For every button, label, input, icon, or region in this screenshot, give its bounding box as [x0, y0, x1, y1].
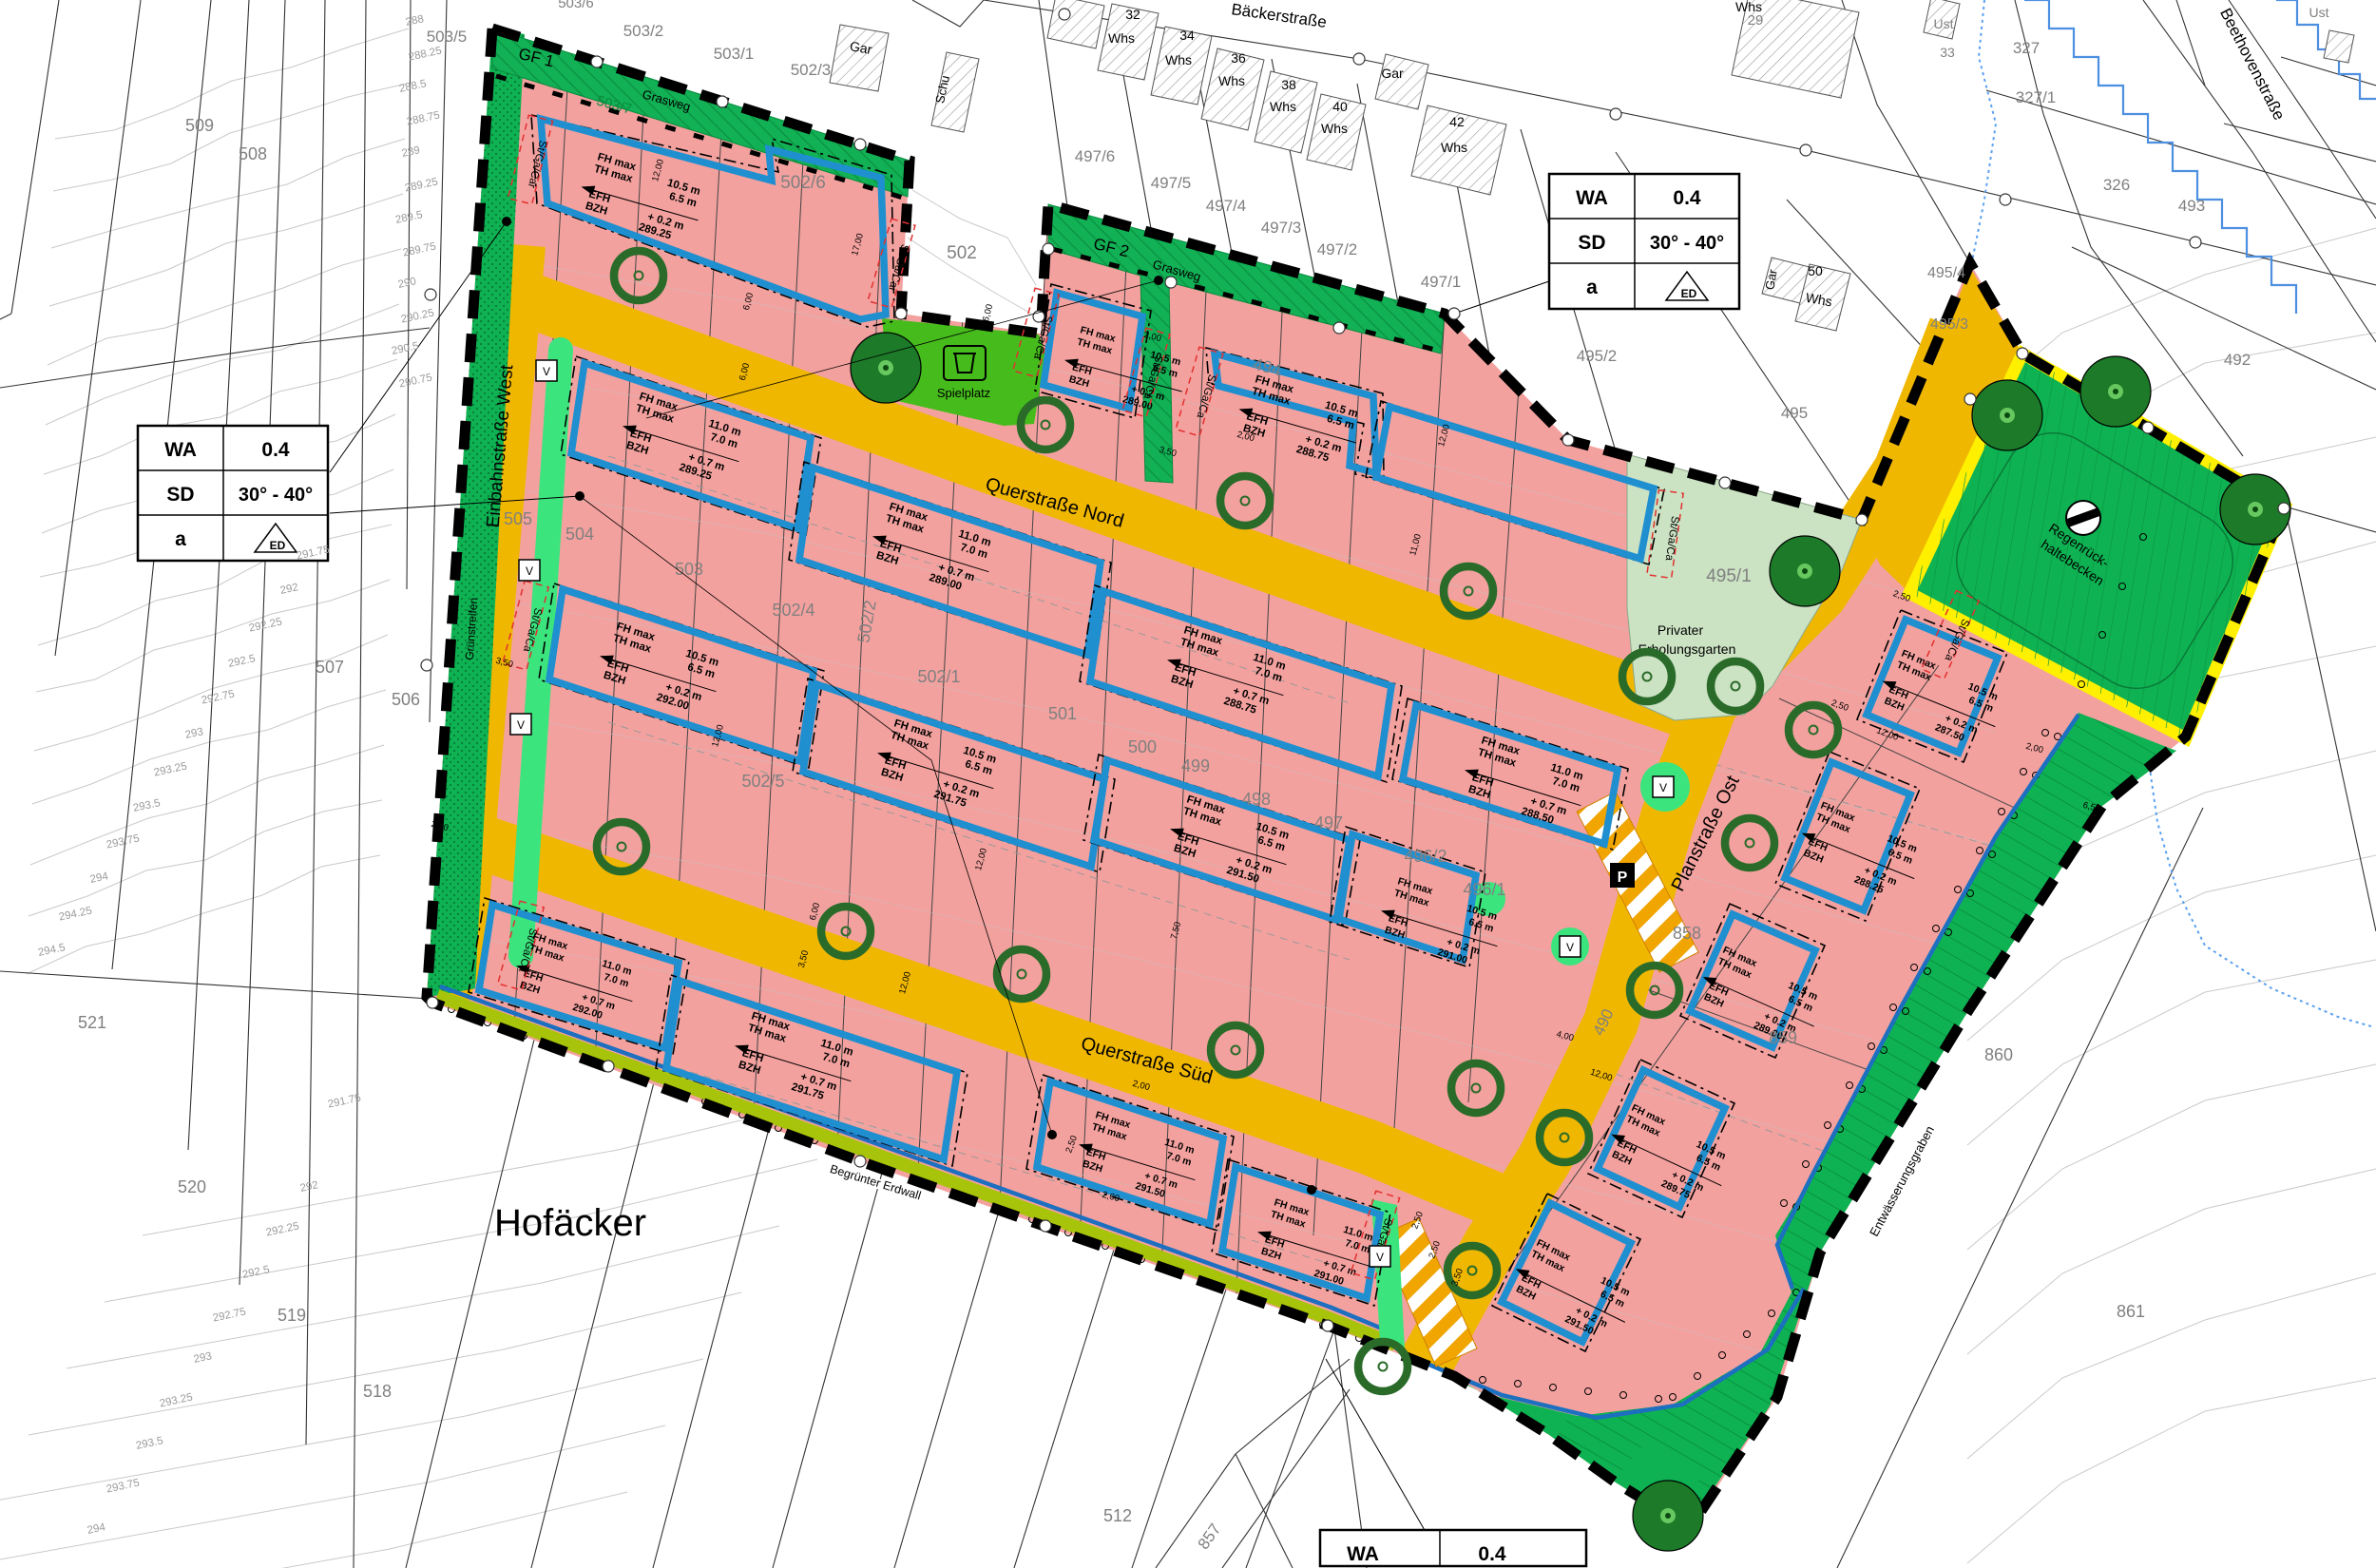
svg-text:503/5: 503/5 — [427, 28, 468, 46]
svg-text:495/3: 495/3 — [1930, 316, 1968, 333]
svg-text:497/6: 497/6 — [1075, 147, 1116, 165]
svg-text:0.4: 0.4 — [1673, 187, 1701, 209]
svg-text:497/5: 497/5 — [1151, 174, 1192, 192]
svg-text:519: 519 — [278, 1306, 306, 1325]
svg-text:Privater: Privater — [1657, 622, 1704, 638]
svg-text:502/6: 502/6 — [780, 173, 826, 193]
svg-text:Whs: Whs — [1321, 121, 1348, 136]
svg-text:502/4: 502/4 — [772, 601, 814, 620]
svg-text:507: 507 — [316, 658, 344, 677]
svg-text:521: 521 — [78, 1013, 106, 1032]
svg-text:501: 501 — [1048, 704, 1077, 723]
svg-text:497/4: 497/4 — [1206, 197, 1247, 215]
svg-text:V: V — [1376, 1251, 1384, 1264]
svg-text:496/2: 496/2 — [1404, 847, 1447, 866]
svg-text:30° - 40°: 30° - 40° — [239, 485, 313, 506]
svg-text:495/1: 495/1 — [1706, 566, 1752, 586]
svg-text:32: 32 — [1125, 7, 1140, 22]
svg-text:502/1: 502/1 — [917, 667, 960, 686]
svg-text:V: V — [1659, 781, 1667, 794]
svg-text:497/3: 497/3 — [1261, 219, 1302, 237]
svg-text:502/3: 502/3 — [791, 61, 832, 79]
svg-text:P: P — [1618, 870, 1628, 886]
svg-text:WA: WA — [164, 439, 197, 461]
svg-text:33: 33 — [1940, 45, 1955, 60]
svg-text:34: 34 — [1179, 28, 1195, 43]
svg-text:Whs: Whs — [1735, 0, 1762, 14]
svg-text:859: 859 — [1769, 1028, 1797, 1047]
svg-text:ED: ED — [1681, 287, 1697, 300]
svg-text:327: 327 — [2013, 39, 2040, 57]
svg-text:503/2: 503/2 — [623, 22, 664, 40]
svg-text:512: 512 — [1103, 1506, 1132, 1525]
svg-text:SD: SD — [166, 484, 194, 506]
svg-text:509: 509 — [185, 116, 214, 135]
svg-text:36: 36 — [1231, 50, 1246, 66]
svg-text:495: 495 — [1781, 404, 1808, 422]
svg-text:506: 506 — [392, 690, 420, 709]
svg-text:518: 518 — [363, 1382, 392, 1401]
svg-text:Ust: Ust — [1934, 16, 1954, 31]
svg-text:497/1: 497/1 — [1421, 273, 1462, 291]
svg-text:495/4: 495/4 — [1927, 265, 1965, 281]
svg-text:Whs: Whs — [1218, 73, 1245, 88]
svg-text:Whs: Whs — [1108, 30, 1135, 46]
svg-text:Ust: Ust — [2309, 5, 2329, 20]
svg-text:503/1: 503/1 — [714, 45, 755, 63]
svg-text:SD: SD — [1578, 232, 1605, 254]
svg-text:498: 498 — [1242, 790, 1271, 809]
svg-text:493: 493 — [2178, 197, 2205, 215]
svg-text:30° - 40°: 30° - 40° — [1650, 233, 1724, 254]
svg-text:504: 504 — [565, 525, 594, 544]
svg-text:520: 520 — [178, 1177, 206, 1196]
svg-text:503: 503 — [675, 560, 703, 579]
svg-text:50: 50 — [1808, 263, 1823, 278]
svg-text:503/6: 503/6 — [558, 0, 594, 11]
svg-text:495/2: 495/2 — [1577, 347, 1618, 365]
svg-text:a: a — [175, 528, 186, 550]
svg-text:Whs: Whs — [1165, 52, 1192, 67]
svg-text:Hofäcker: Hofäcker — [494, 1202, 646, 1244]
svg-text:505: 505 — [504, 509, 532, 528]
svg-text:326: 326 — [2103, 176, 2130, 194]
svg-text:V: V — [526, 564, 533, 578]
svg-text:502: 502 — [947, 243, 977, 263]
svg-text:496/1: 496/1 — [1463, 880, 1505, 899]
svg-text:860: 860 — [1984, 1045, 2013, 1064]
svg-text:42: 42 — [1449, 114, 1465, 129]
svg-text:WA: WA — [1347, 1543, 1379, 1565]
svg-text:Gar: Gar — [1381, 66, 1404, 81]
svg-text:508: 508 — [239, 144, 267, 163]
svg-text:40: 40 — [1332, 99, 1348, 114]
svg-text:502/5: 502/5 — [741, 772, 784, 791]
svg-text:492: 492 — [2224, 351, 2251, 369]
svg-text:Whs: Whs — [1270, 99, 1296, 114]
svg-text:497/2: 497/2 — [1317, 240, 1358, 258]
svg-text:Spielplatz: Spielplatz — [937, 386, 990, 400]
svg-text:29: 29 — [1748, 12, 1764, 29]
svg-text:0.4: 0.4 — [1478, 1543, 1506, 1565]
svg-text:497: 497 — [1314, 813, 1343, 832]
svg-text:V: V — [1566, 941, 1574, 954]
svg-text:500: 500 — [1128, 737, 1157, 756]
svg-text:327/1: 327/1 — [2016, 88, 2057, 106]
svg-text:Whs: Whs — [1441, 140, 1467, 155]
svg-text:499: 499 — [1181, 756, 1210, 775]
svg-text:V: V — [517, 718, 525, 732]
svg-text:38: 38 — [1281, 77, 1296, 92]
svg-text:V: V — [543, 365, 550, 378]
svg-text:ED: ED — [270, 539, 286, 552]
svg-text:861: 861 — [2117, 1302, 2145, 1321]
svg-text:a: a — [1586, 277, 1598, 298]
svg-text:WA: WA — [1576, 187, 1608, 209]
svg-text:858: 858 — [1673, 924, 1701, 943]
svg-text:0.4: 0.4 — [261, 439, 290, 461]
